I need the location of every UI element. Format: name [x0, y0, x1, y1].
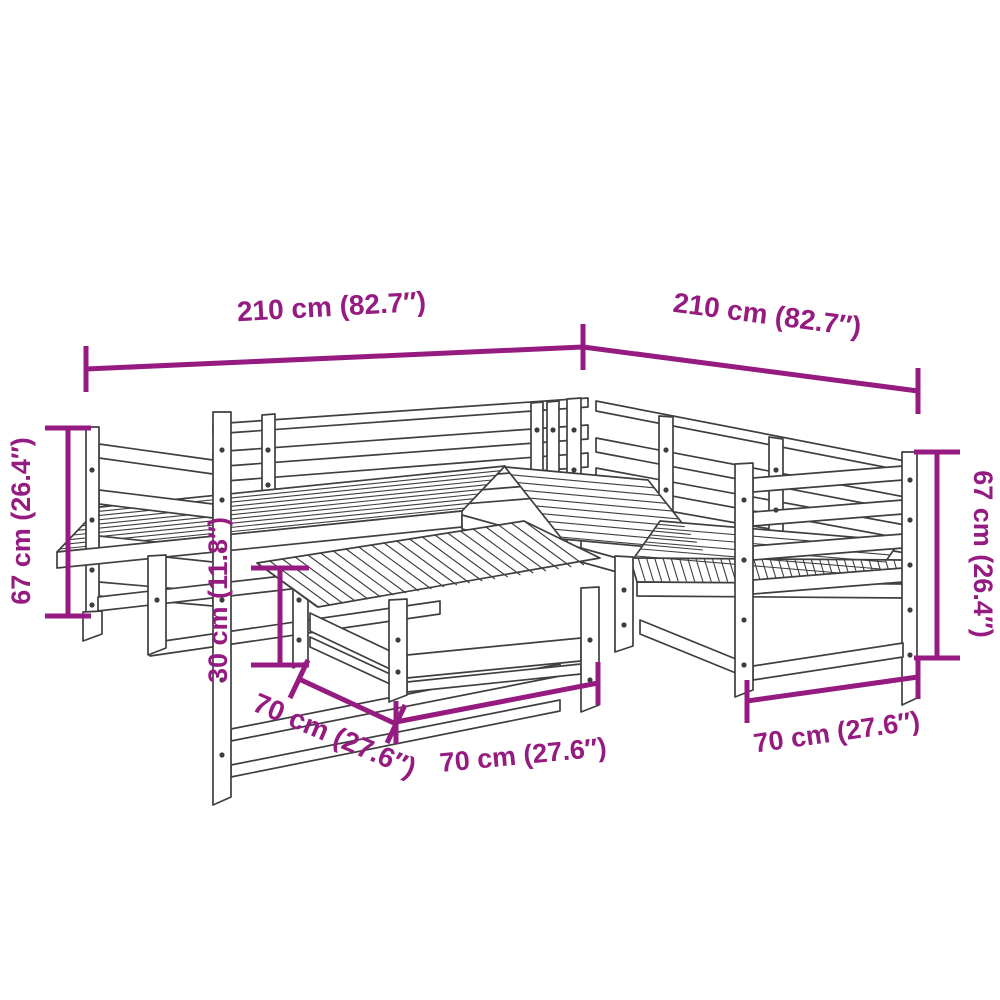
screw-dot [663, 487, 668, 492]
dimension-label: 67 cm (26.4″) [6, 437, 36, 605]
screw-dot [265, 447, 270, 452]
dimension-label: 210 cm (82.7″) [236, 286, 427, 328]
screw-dot [219, 497, 224, 502]
dimension-label: 70 cm (27.6″) [752, 706, 922, 759]
screw-dot [621, 587, 626, 592]
screw-dot [89, 467, 94, 472]
screw-dot [571, 427, 576, 432]
screw-dot [907, 477, 912, 482]
screw-dot [395, 669, 400, 674]
screw-dot [741, 497, 746, 502]
screw-dot [663, 447, 668, 452]
dimension-label: 70 cm (27.6″) [438, 732, 608, 778]
dimension-right-height: 67 cm (26.4″) [914, 452, 998, 658]
screw-dot [219, 447, 224, 452]
screw-dot [534, 427, 539, 432]
screw-dot [550, 427, 555, 432]
screw-dot [773, 467, 778, 472]
product-dimension-diagram: 210 cm (82.7″) 210 cm (82.7″) 67 cm (26.… [0, 0, 1000, 1000]
dimension-label: 30 cm (11.8″) [203, 517, 233, 683]
dimension-line [583, 347, 918, 391]
screw-dot [89, 602, 94, 607]
screw-dot [773, 507, 778, 512]
screw-dot [741, 662, 746, 667]
screw-dot [907, 517, 912, 522]
dimension-label: 210 cm (82.7″) [671, 287, 863, 342]
dimension-label: 67 cm (26.4″) [968, 470, 998, 638]
screw-dot [395, 637, 400, 642]
screw-dot [296, 597, 301, 602]
screw-dot [571, 467, 576, 472]
screw-dot [587, 637, 592, 642]
screw-dot [621, 622, 626, 627]
screw-dot [219, 752, 224, 757]
screw-dot [907, 607, 912, 612]
dimension-top-right-width: 210 cm (82.7″) [583, 287, 918, 414]
dimension-line [86, 347, 583, 369]
dimension-left-height: 67 cm (26.4″) [6, 428, 91, 616]
screw-dot [907, 562, 912, 567]
dimension-top-left-width: 210 cm (82.7″) [86, 286, 583, 392]
diagram-svg: 210 cm (82.7″) 210 cm (82.7″) 67 cm (26.… [0, 0, 1000, 1000]
screw-dot [296, 637, 301, 642]
dimension-line [747, 677, 918, 701]
screw-dot [907, 652, 912, 657]
screw-dot [89, 517, 94, 522]
screw-dot [154, 597, 159, 602]
screw-dot [89, 567, 94, 572]
screw-dot [265, 482, 270, 487]
screw-dot [741, 617, 746, 622]
screw-dot [741, 557, 746, 562]
